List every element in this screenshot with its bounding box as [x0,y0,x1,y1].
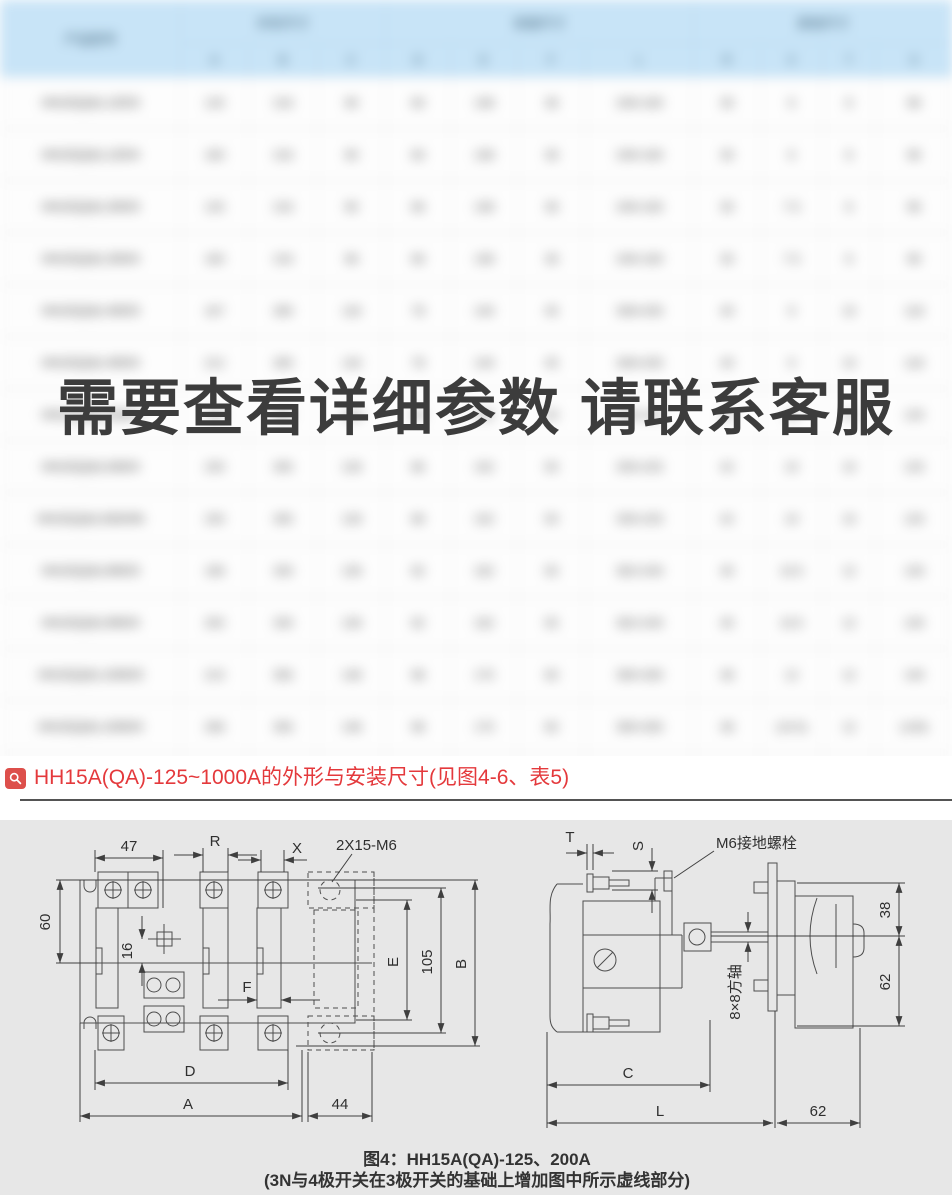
value-cell: 148 [318,701,386,753]
value-cell: 10 [823,441,876,493]
value-cell: 108 [451,233,518,285]
value-cell: 148 [318,753,386,757]
blurred-spec-table-section: 产品型号外形尺寸安装尺寸其他尺寸ABCDEFLRXTS HH15(QA)-125… [0,0,952,756]
group-header: 安装尺寸 [386,1,694,44]
value-cell: 330 [249,545,318,597]
value-cell: 250 [181,597,249,649]
dim-62-label: 62 [877,974,894,991]
front-view [80,872,374,1052]
value-cell: 78 [386,285,451,337]
value-cell: 96 [876,181,952,233]
value-cell: 390×260 [586,701,694,753]
value-cell: 48 [694,701,761,753]
magnifier-icon [5,768,26,789]
table-row: HH15(QA)-1000/42683561489817560390×26048… [1,701,952,753]
value-cell: (10.5) [761,701,823,753]
value-cell: 42 [694,441,761,493]
dim-E-label: E [385,957,402,967]
value-cell: 66 [386,233,451,285]
value-cell: 98 [386,753,451,757]
value-cell: 362×240 [586,545,694,597]
value-cell: 10 [761,493,823,545]
sub-header: R [694,44,761,77]
value-cell: 86 [386,493,451,545]
dim-38-label: 38 [877,902,894,919]
value-cell: 246×160 [586,129,694,181]
table-row: HH15(QA)-630/42303051288615250335×225421… [1,441,952,493]
table-row: HH15(QA)-800/31963301369216255362×240451… [1,545,952,597]
dimension-diagram-panel: 47 R X 2X15-M6 60 [0,820,952,1195]
value-cell: 45 [518,285,586,337]
table-row: HH15(QA)-1000/32103561489817560390×26048… [1,649,952,701]
value-cell: 335×225 [586,441,694,493]
value-cell: 175 [451,649,518,701]
value-cell: 128 [318,441,386,493]
dim-60-label: 60 [37,914,54,931]
value-cell: 216 [249,77,318,129]
value-cell: 136 [318,545,386,597]
value-cell: 136 [318,597,386,649]
value-cell: 160 [181,129,249,181]
value-cell: 12 [823,701,876,753]
value-cell: 36 [518,129,586,181]
value-cell: 128 [318,493,386,545]
sub-header: B [249,44,318,77]
value-cell: 98 [386,701,451,753]
value-cell: 356 [249,701,318,753]
table-row: HH15(QA)-125/4160216906010836246×1603568… [1,129,952,181]
product-spec-page: 产品型号外形尺寸安装尺寸其他尺寸ABCDEFLRXTS HH15(QA)-125… [0,0,952,1195]
value-cell: 280 [249,285,318,337]
value-cell: 60 [386,77,451,129]
value-cell: 7.5 [761,233,823,285]
value-cell: 50 [518,493,586,545]
value-cell: 98 [386,649,451,701]
value-cell: 55 [518,597,586,649]
value-cell: 148 [318,649,386,701]
value-cell: (140) [876,701,952,753]
value-cell: 10.5 [761,545,823,597]
value-cell: 305 [249,493,318,545]
value-cell: 12 [823,753,876,757]
value-cell: 45 [694,545,761,597]
sub-header: S [876,44,952,77]
value-cell: 48 [694,649,761,701]
value-cell: 216 [249,181,318,233]
model-cell: HH15(QA)-200/4 [1,233,181,285]
sub-header: T [823,44,876,77]
value-cell: 48 [694,753,761,757]
table-row: HH15(QA)-800/42503301369216255362×240451… [1,597,952,649]
watermark-text: 需要查看详细参数 请联系客服 [0,358,952,447]
value-cell: (140) [876,753,952,757]
value-cell: 50 [518,441,586,493]
model-cell: HH15(QA)-1000/4N [1,753,181,757]
value-cell: 96 [318,233,386,285]
side-view-dimensions: T S M6接地螺栓 8×8方轴 38 62 [547,829,905,1128]
table-row: HH15(QA)-200/3125216906610836246×160357.… [1,181,952,233]
dim-B-label: B [453,959,470,969]
value-cell: 9 [761,285,823,337]
value-cell: 60 [518,753,586,757]
shaft-label: 8×8方轴 [727,964,744,1019]
sub-header: D [386,44,451,77]
model-cell: HH15(QA)-125/4 [1,129,181,181]
value-cell: 35 [694,77,761,129]
group-header: 其他尺寸 [694,1,952,44]
dimension-diagram: 47 R X 2X15-M6 60 [0,820,952,1195]
model-cell: HH15(QA)-200/3 [1,181,181,233]
dim-A-label: A [183,1096,193,1113]
dim-44-label: 44 [332,1096,349,1113]
value-cell: 162 [451,545,518,597]
value-cell: 36 [518,233,586,285]
value-cell: 125 [876,441,952,493]
sub-header: C [318,44,386,77]
value-cell: 36 [518,77,586,129]
value-cell: 40 [694,285,761,337]
sub-header: X [761,44,823,77]
value-cell: 10 [823,285,876,337]
value-cell: 8 [823,129,876,181]
value-cell: 12 [823,597,876,649]
value-cell: 90 [318,77,386,129]
value-cell: 216 [249,129,318,181]
value-cell: 86 [386,441,451,493]
value-cell: 60 [386,129,451,181]
value-cell: 362×240 [586,597,694,649]
value-cell: 66 [386,181,451,233]
value-cell: 96 [876,77,952,129]
model-cell: HH15(QA)-400/3 [1,285,181,337]
dim-R-label: R [210,833,221,850]
value-cell: 60 [518,649,586,701]
value-cell: 140 [876,649,952,701]
model-cell: HH15(QA)-800/3 [1,545,181,597]
value-cell: 230 [181,493,249,545]
dim-62b-label: 62 [810,1103,827,1120]
value-cell: 162 [451,597,518,649]
value-cell: 167 [181,285,249,337]
value-cell: 130 [876,597,952,649]
table-row: HH15(QA)-1000/4N2683561489817560390×2604… [1,753,952,757]
value-cell: 8 [823,77,876,129]
value-cell: 108 [451,129,518,181]
value-cell: 356 [249,753,318,757]
value-cell: 10 [761,441,823,493]
value-cell: 90 [318,129,386,181]
value-cell: 12 [761,649,823,701]
caption-line1: 图4：HH15A(QA)-125、200A [363,1150,591,1169]
value-cell: 108 [451,181,518,233]
dim-F-label: F [242,979,251,996]
value-cell: 152 [451,493,518,545]
value-cell: 140 [451,285,518,337]
value-cell: 8 [823,181,876,233]
value-cell: 6 [761,129,823,181]
model-cell: HH15(QA)-630/4N [1,493,181,545]
value-cell: 8 [823,233,876,285]
dim-16-label: 16 [119,943,136,960]
group-header: 外形尺寸 [181,1,386,44]
page-title: HH15A(QA)-125~1000A的外形与安装尺寸(见图4-6、表5) [34,765,569,791]
value-cell: 330 [249,597,318,649]
value-cell: 125 [181,181,249,233]
value-cell: 12 [823,545,876,597]
value-cell: 390×260 [586,753,694,757]
ground-bolt-label: M6接地螺栓 [716,835,797,852]
dim-S-label: S [630,841,647,851]
model-column-header: 产品型号 [1,1,181,77]
value-cell: 210 [181,649,249,701]
table-row: HH15(QA)-630/4N2303051288615250335×22542… [1,493,952,545]
value-cell: 10.5 [761,597,823,649]
value-cell: (10.5) [761,753,823,757]
value-cell: 35 [694,181,761,233]
heading-divider [20,799,952,801]
value-cell: 35 [694,233,761,285]
value-cell: 390×260 [586,649,694,701]
value-cell: 35 [694,129,761,181]
dim-X-label: X [292,840,302,857]
value-cell: 175 [451,753,518,757]
value-cell: 42 [694,493,761,545]
value-cell: 356 [249,649,318,701]
table-row: HH15(QA)-125/3125216906010836246×1603568… [1,77,952,129]
value-cell: 12 [823,649,876,701]
value-cell: 125 [181,77,249,129]
sub-header: L [586,44,694,77]
value-cell: 230 [181,441,249,493]
value-cell: 268 [181,701,249,753]
value-cell: 130 [876,545,952,597]
value-cell: 152 [451,441,518,493]
value-cell: 96 [876,233,952,285]
sub-header: A [181,44,249,77]
value-cell: 125 [876,493,952,545]
caption-line2: (3N与4极开关在3极开关的基础上增加图中所示虚线部分) [264,1170,690,1190]
value-cell: 108 [451,77,518,129]
value-cell: 45 [694,597,761,649]
model-cell: HH15(QA)-1000/3 [1,649,181,701]
value-cell: 96 [876,129,952,181]
value-cell: 335×225 [586,493,694,545]
model-cell: HH15(QA)-800/4 [1,597,181,649]
figure-caption: 图4：HH15A(QA)-125、200A (3N与4极开关在3极开关的基础上增… [264,1150,690,1190]
value-cell: 196 [181,545,249,597]
value-cell: 305 [249,441,318,493]
table-row: HH15(QA)-200/4160216966610836246×160357.… [1,233,952,285]
sub-header: E [451,44,518,77]
value-cell: 92 [386,597,451,649]
value-cell: 175 [451,701,518,753]
value-cell: 7.5 [761,181,823,233]
value-cell: 60 [518,701,586,753]
value-cell: 308×205 [586,285,694,337]
dim-D-label: D [185,1063,196,1080]
bolt-callout-label: 2X15-M6 [336,837,397,854]
dim-L-label: L [656,1103,664,1120]
value-cell: 92 [386,545,451,597]
model-cell: HH15(QA)-125/3 [1,77,181,129]
value-cell: 160 [181,233,249,285]
value-cell: 268 [181,753,249,757]
value-cell: 118 [876,285,952,337]
model-cell: HH15(QA)-1000/4 [1,701,181,753]
value-cell: 55 [518,545,586,597]
model-cell: HH15(QA)-630/4 [1,441,181,493]
value-cell: 118 [318,285,386,337]
section-heading: HH15A(QA)-125~1000A的外形与安装尺寸(见图4-6、表5) [0,756,952,820]
value-cell: 216 [249,233,318,285]
dim-105-label: 105 [419,949,436,974]
value-cell: 246×160 [586,233,694,285]
sub-header: F [518,44,586,77]
value-cell: 246×160 [586,181,694,233]
value-cell: 246×160 [586,77,694,129]
value-cell: 6 [761,77,823,129]
value-cell: 36 [518,181,586,233]
dim-C-label: C [623,1065,634,1082]
value-cell: 90 [318,181,386,233]
dim-47-label: 47 [121,838,138,855]
table-row: HH15(QA)-400/31672801187814045308×205409… [1,285,952,337]
value-cell: 10 [823,493,876,545]
dim-T-label: T [565,829,574,846]
